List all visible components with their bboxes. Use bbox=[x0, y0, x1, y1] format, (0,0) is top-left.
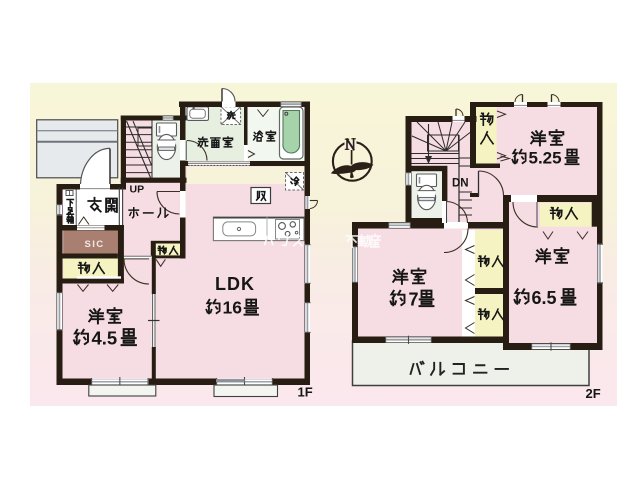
svg-text:SIC: SIC bbox=[85, 239, 105, 250]
svg-text:4.5: 4.5 bbox=[92, 328, 118, 349]
svg-text:7: 7 bbox=[409, 290, 419, 310]
svg-text:6.5: 6.5 bbox=[532, 288, 557, 308]
svg-text:LDK: LDK bbox=[215, 274, 255, 294]
svg-text:1F: 1F bbox=[298, 385, 313, 400]
svg-text:DN: DN bbox=[452, 178, 469, 190]
svg-text:2F: 2F bbox=[586, 386, 601, 401]
svg-text:16: 16 bbox=[223, 298, 243, 318]
svg-text:UP: UP bbox=[130, 184, 145, 196]
svg-text:5.25: 5.25 bbox=[529, 149, 562, 168]
